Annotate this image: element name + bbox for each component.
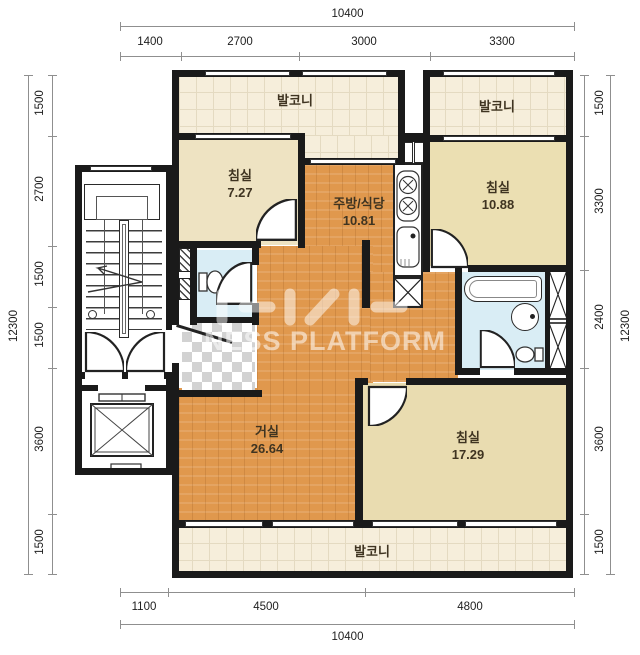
- wall: [164, 372, 172, 379]
- window: [443, 136, 555, 141]
- dim-total-bottom: 10400: [120, 631, 575, 643]
- dim-line: [120, 592, 575, 593]
- wall: [455, 368, 480, 375]
- dim-tick: [24, 574, 33, 575]
- dim-segment: 1500: [594, 512, 606, 572]
- dim-segment: 1100: [104, 601, 184, 613]
- window: [310, 159, 396, 164]
- dim-tick: [24, 75, 33, 76]
- watermark-text: NESS PLATFORM: [200, 326, 450, 357]
- window: [205, 71, 290, 76]
- room-name: 발코니: [354, 544, 390, 559]
- wall: [423, 70, 430, 142]
- wall: [423, 135, 430, 272]
- dim-tick: [299, 52, 300, 61]
- dim-total-right: 12300: [620, 296, 632, 356]
- dim-segment: 3600: [34, 409, 46, 469]
- wall: [398, 70, 405, 165]
- wall: [468, 265, 573, 272]
- dim-segment: 3300: [462, 36, 542, 48]
- door-arc-bedroom-lower-right: [367, 385, 407, 426]
- dim-tick: [580, 368, 589, 369]
- room-name: 침실: [486, 180, 510, 195]
- dim-line: [120, 56, 575, 57]
- wall: [75, 372, 85, 379]
- room-label-bedroom-small: 침실7.27: [180, 168, 300, 202]
- dim-tick: [120, 22, 121, 31]
- wall: [172, 571, 573, 578]
- window: [185, 521, 263, 527]
- watermark-logo-icon: [210, 282, 415, 330]
- dim-segment: 4800: [430, 601, 510, 613]
- dim-tick: [168, 588, 169, 597]
- dim-line: [120, 26, 575, 27]
- dim-line: [28, 75, 29, 575]
- dim-segment: 3600: [594, 409, 606, 469]
- room-label-balcony-bottom: 발코니: [312, 544, 432, 561]
- room-name: 발코니: [479, 99, 515, 114]
- wall: [172, 520, 179, 578]
- wall: [406, 378, 573, 385]
- wall: [514, 368, 573, 375]
- room-label-living: 거실26.64: [207, 424, 327, 458]
- dim-tick: [48, 75, 57, 76]
- dim-segment: 1500: [34, 305, 46, 365]
- wall: [75, 385, 98, 391]
- dim-segment: 1500: [34, 512, 46, 572]
- dim-tick: [181, 52, 182, 61]
- dim-segment: 1500: [34, 244, 46, 304]
- room-name: 침실: [456, 430, 480, 445]
- wall: [75, 165, 82, 475]
- door-arc-bathroom-right: [479, 330, 515, 369]
- room-name: 침실: [228, 168, 252, 183]
- closet-xbox-icon: [548, 322, 568, 372]
- room-label-balcony-top-left: 발코니: [235, 93, 355, 110]
- wall: [252, 245, 259, 265]
- stair-start-marker: [146, 310, 155, 319]
- dim-segment: 3000: [324, 36, 404, 48]
- dim-segment: 1500: [34, 73, 46, 133]
- wall: [172, 70, 179, 325]
- window: [272, 521, 354, 527]
- dim-line: [584, 75, 585, 575]
- dim-tick: [48, 136, 57, 137]
- dim-tick: [580, 75, 589, 76]
- dim-tick: [574, 620, 575, 629]
- dim-tick: [574, 588, 575, 597]
- door-arc-stair-right: [126, 332, 166, 373]
- elevator-icon: [85, 390, 163, 476]
- stair-direction-arrow-icon: [84, 252, 162, 298]
- dim-segment: 1400: [110, 36, 190, 48]
- wall: [75, 468, 172, 475]
- stair-landing-inner: [96, 196, 148, 220]
- dim-tick: [120, 52, 121, 61]
- dim-total-top: 10400: [120, 8, 575, 20]
- window: [90, 166, 152, 171]
- dim-tick: [48, 368, 57, 369]
- room-name: 주방/식당: [333, 196, 384, 211]
- door-arc-bedroom-small: [256, 199, 298, 242]
- wall: [145, 385, 168, 391]
- wall: [355, 378, 363, 528]
- wall: [190, 245, 197, 325]
- room-name: 발코니: [277, 93, 313, 108]
- window: [443, 71, 555, 76]
- dim-tick: [120, 620, 121, 629]
- washbasin-drain: [530, 314, 535, 319]
- dim-tick: [574, 22, 575, 31]
- wall: [179, 241, 261, 248]
- door-arc-bedroom-upper-right: [430, 229, 468, 269]
- wall: [172, 363, 179, 528]
- dim-tick: [606, 75, 615, 76]
- room-name: 거실: [255, 424, 279, 439]
- dim-tick: [365, 588, 366, 597]
- wall: [172, 390, 262, 397]
- dim-tick: [580, 270, 589, 271]
- stair-start-marker: [88, 310, 97, 319]
- dim-segment: 1500: [594, 73, 606, 133]
- dim-tick: [48, 246, 57, 247]
- dim-line: [120, 624, 575, 625]
- window: [302, 71, 387, 76]
- room-area: 10.88: [482, 197, 515, 212]
- floor-plan: 10400 1400 2700 3000 3300 1100 4500 4800…: [0, 0, 640, 655]
- wall: [566, 70, 573, 578]
- toilet-icon: [514, 343, 546, 366]
- dim-line: [52, 75, 53, 575]
- dim-tick: [606, 574, 615, 575]
- room-label-bedroom-upper-right: 침실10.88: [438, 180, 558, 214]
- window: [465, 521, 557, 527]
- dim-tick: [430, 52, 431, 61]
- room-label-balcony-top-right: 발코니: [437, 99, 557, 116]
- dim-segment: 2700: [200, 36, 280, 48]
- dim-tick: [580, 574, 589, 575]
- dim-segment: 3300: [594, 171, 606, 231]
- wall: [455, 267, 462, 375]
- wall: [545, 265, 550, 375]
- dim-line: [610, 75, 611, 575]
- door-arc-stair-left: [84, 332, 124, 373]
- window: [372, 521, 458, 527]
- dim-tick: [48, 514, 57, 515]
- window: [195, 134, 291, 139]
- room-label-kitchen-dining: 주방/식당10.81: [299, 196, 419, 230]
- bathtub-inner: [469, 280, 537, 298]
- dim-total-left: 12300: [8, 296, 20, 356]
- closet-xbox-icon: [548, 269, 568, 320]
- room-area: 17.29: [452, 447, 485, 462]
- dim-segment: 2400: [594, 287, 606, 347]
- dim-tick: [120, 588, 121, 597]
- wall: [122, 372, 128, 379]
- dim-tick: [574, 52, 575, 61]
- dim-tick: [580, 136, 589, 137]
- room-label-bedroom-lower-right: 침실17.29: [408, 430, 528, 464]
- room-area: 26.64: [251, 441, 284, 456]
- dim-segment: 2700: [34, 159, 46, 219]
- dim-tick: [48, 574, 57, 575]
- dim-tick: [48, 307, 57, 308]
- dim-tick: [580, 514, 589, 515]
- dim-segment: 4500: [226, 601, 306, 613]
- room-area: 10.81: [343, 213, 376, 228]
- room-area: 7.27: [227, 185, 252, 200]
